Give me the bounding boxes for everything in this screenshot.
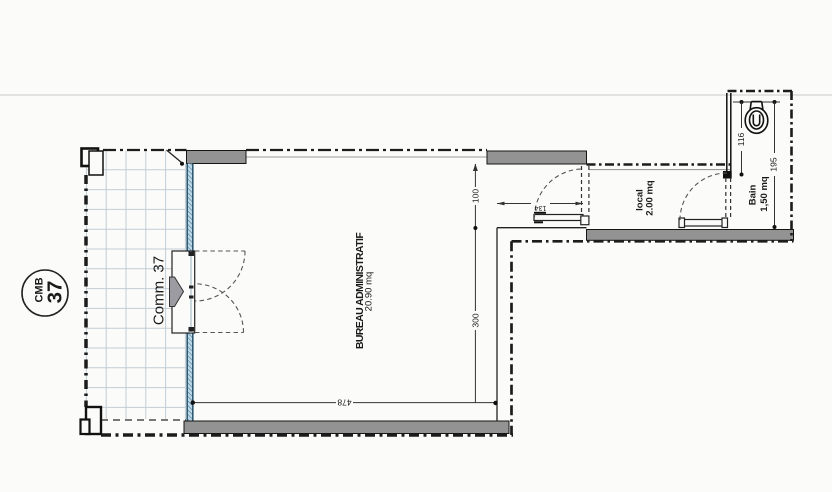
svg-text:2.00 mq: 2.00 mq xyxy=(645,180,656,216)
svg-text:1,50 mq: 1,50 mq xyxy=(759,176,770,212)
svg-text:20.90 mq: 20.90 mq xyxy=(363,272,374,312)
svg-text:Comm. 37: Comm. 37 xyxy=(151,256,168,325)
svg-text:195: 195 xyxy=(769,157,779,171)
svg-text:Bain: Bain xyxy=(748,185,759,206)
svg-text:100: 100 xyxy=(471,189,481,203)
svg-text:300: 300 xyxy=(471,313,481,327)
svg-text:478: 478 xyxy=(337,398,351,408)
svg-text:116: 116 xyxy=(736,132,746,146)
svg-text:134: 134 xyxy=(535,204,547,211)
svg-text:37: 37 xyxy=(44,281,67,304)
